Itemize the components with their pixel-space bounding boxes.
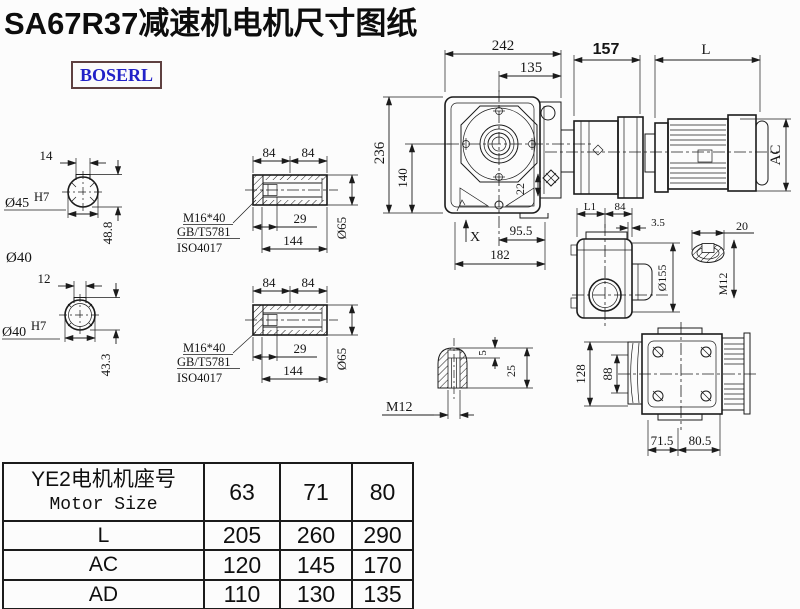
dim-width: 242 [492,38,515,54]
dim-bore-dia: Ø45 [5,196,29,211]
dim-bore-tol: H7 [34,190,49,204]
value-AC-71: 145 [280,550,352,580]
header-motor-size-en: Motor Size [4,493,203,517]
table-row-AD: AD 110 130 135 [3,580,413,609]
motor-size-63: 63 [204,463,280,521]
dim-l1: L1 [584,201,596,213]
hollow-shaft-top-view: 84 84 M16*40 GB/T5781 ISO4017 29 144 Ø65 [177,145,358,255]
lifting-hole [541,106,555,120]
dim-motor-length: L [701,42,710,58]
dim-key-width: 12 [38,271,51,286]
dim-foot-2: 80.5 [689,433,712,448]
table-row-L: L 205 260 290 [3,521,413,550]
value-L-71: 260 [280,521,352,550]
value-L-80: 290 [352,521,413,550]
standard-iso-label: ISO4017 [177,241,222,255]
dim-dia: Ø65 [334,348,349,370]
value-AD-71: 130 [280,580,352,609]
bolt-spec-label: M16*40 [183,341,225,355]
dim-half-length-1: 84 [263,275,277,290]
motor-size-71: 71 [280,463,352,521]
dim-key-height: 43.3 [98,354,113,377]
motor-size-table: YE2电机机座号 Motor Size 63 71 80 L 205 260 2… [2,462,414,609]
standard-gb-label: GB/T5781 [177,225,230,239]
dim-adapter-length: 157 [593,41,620,58]
value-L-63: 205 [204,521,280,550]
dim-half-length-2: 84 [302,145,316,160]
value-AC-63: 120 [204,550,280,580]
motor-size-80: 80 [352,463,413,521]
hollow-shaft-bottom-view: 84 84 M16*40 GB/T5781 ISO4017 29 144 Ø65 [177,275,358,385]
dim-bore-tol: H7 [31,319,46,333]
dim-motor-dia: AC [768,145,784,166]
keyway-section-detail: 20 M12 [692,219,754,298]
dim-dia: Ø65 [334,217,349,239]
surface-mark-label: X [470,230,480,245]
dim-84: 84 [615,201,627,213]
dim-od-label: Ø40 [6,250,32,266]
row-label-L: L [3,521,204,550]
header-motor-size-cell: YE2电机机座号 Motor Size [3,463,204,521]
value-AC-80: 170 [352,550,413,580]
value-AD-63: 110 [204,580,280,609]
dim-height: 128 [573,364,588,384]
shaft-section-top-view: 14 Ø45 H7 48.8 Ø40 [4,148,122,266]
dim-foot-1: 71.5 [651,433,674,448]
dim-plug-offset: 22 [513,183,527,195]
header-motor-size-cn: YE2电机机座号 [4,467,203,493]
drawing-sheet: SA67R37减速机电机尺寸图纸 BOSERL 14 [0,0,800,609]
row-label-AD: AD [3,580,204,609]
shaft-end-detail: 5 25 M12 [382,337,533,419]
dim-flange-dia: Ø155 [655,265,669,292]
dim-base-width: 182 [490,247,510,262]
dim-length: 144 [283,363,303,378]
dim-length: 144 [283,233,303,248]
standard-iso-label: ISO4017 [177,371,222,385]
row-label-AC: AC [3,550,204,580]
dim-half-length-1: 84 [263,145,277,160]
dim-center-to-base: 140 [395,168,410,188]
table-header-row: YE2电机机座号 Motor Size 63 71 80 [3,463,413,521]
dim-inner: 88 [600,368,615,381]
flange-bottom-view: 128 88 71.5 80.5 [573,322,758,456]
motor-side-view: 157 L AC [545,41,791,198]
dim-half-length-2: 84 [302,275,316,290]
dim-bolt-depth: 29 [294,341,307,356]
dim-thread: M12 [386,400,412,415]
dim-bolt-depth: 29 [294,211,307,226]
dim-key-width: 20 [736,219,748,233]
dim-3-5: 3.5 [651,217,665,229]
gearbox-front-view: 22 242 135 236 140 95.5 182 X [372,38,592,270]
oil-plug [543,170,559,186]
dim-key-width: 14 [40,148,54,163]
table-row-AC: AC 120 145 170 [3,550,413,580]
dim-hole-depth: 25 [504,365,518,377]
shaft-section-bottom-view: 12 Ø40 H7 43.3 [2,271,120,376]
standard-gb-label: GB/T5781 [177,355,230,369]
dim-height: 236 [372,141,388,164]
dim-key-height: 48.8 [100,222,115,245]
surface-finish-mark [457,200,465,211]
dim-thread: M12 [716,273,730,296]
dim-bore-dia: Ø40 [2,325,26,340]
dim-foot-offset: 95.5 [510,223,533,238]
dim-flange-width: 135 [520,60,543,76]
value-AD-80: 135 [352,580,413,609]
bolt-spec-label: M16*40 [183,211,225,225]
dim-key-depth: 5 [477,350,489,356]
gearbox-side-view: L1 84 3.5 Ø155 [571,201,680,328]
